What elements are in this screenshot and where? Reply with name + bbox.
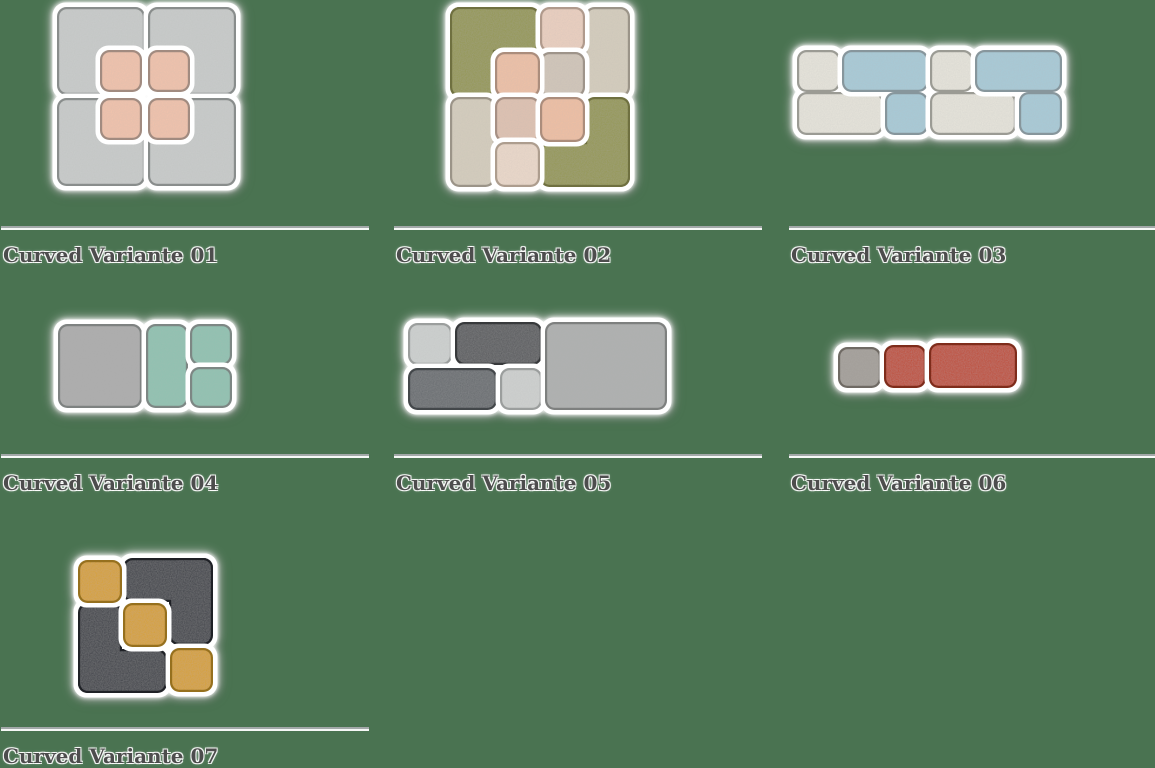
salmon-square-3: [96, 94, 147, 145]
gray-square: [834, 343, 886, 393]
mustard-square-bottom-right: [166, 644, 218, 697]
salmon-square-2: [144, 46, 195, 97]
teal-tall-rect: [142, 320, 193, 413]
caption-divider: [1, 454, 369, 456]
curved-variante-03-image[interactable]: [783, 36, 1076, 149]
light-square-top: [404, 319, 457, 370]
red-wide-rect: [925, 339, 1022, 393]
variant-grid: Curved Variante 01Curved Variante 02Curv…: [0, 0, 1155, 763]
dark-rect-top: [451, 318, 547, 370]
caption-divider: [789, 226, 1155, 228]
curved-variante-07-image[interactable]: [64, 544, 227, 707]
variant-caption: Curved Variante 07: [3, 744, 218, 768]
salmon-square-1: [96, 46, 147, 97]
curved-variante-05-image[interactable]: [394, 308, 681, 424]
curved-variante-04-image[interactable]: [44, 310, 246, 422]
slate-rect-bottom: [404, 364, 502, 415]
variant-caption: Curved Variante 04: [3, 471, 218, 495]
light-square-bottom: [496, 364, 547, 415]
caption-divider: [394, 226, 762, 228]
mustard-square-center: [119, 599, 172, 652]
gray-large-rect-right: [541, 318, 672, 415]
caption-divider: [789, 454, 1155, 456]
caption-divider: [394, 454, 762, 456]
caption-divider: [1, 727, 369, 729]
red-square: [880, 341, 931, 393]
salmon-square-4: [144, 94, 195, 145]
mustard-square-top-left: [74, 556, 127, 608]
curved-variante-02-image[interactable]: [436, 0, 644, 201]
variant-caption: Curved Variante 03: [791, 243, 1006, 267]
variant-caption: Curved Variante 06: [791, 471, 1006, 495]
variant-caption: Curved Variante 01: [3, 243, 218, 267]
salmon-square-center-right: [536, 93, 590, 147]
caption-divider: [1, 226, 369, 228]
curved-variante-01-image[interactable]: [43, 0, 250, 200]
curved-variante-06-image[interactable]: [824, 329, 1031, 402]
variant-caption: Curved Variante 05: [396, 471, 611, 495]
teal-square-top: [186, 320, 237, 370]
gray-large-square: [54, 320, 147, 413]
variant-caption: Curved Variante 02: [396, 243, 611, 267]
pink-square-bottom: [491, 138, 545, 192]
teal-square-bottom: [186, 363, 237, 413]
